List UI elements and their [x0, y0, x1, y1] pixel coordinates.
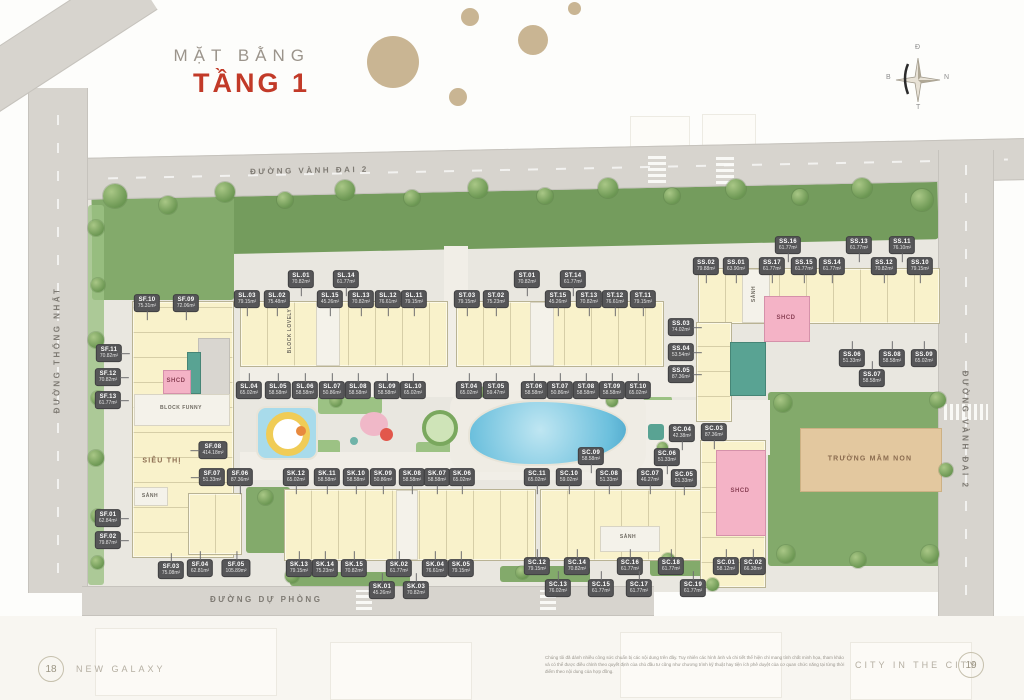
crosswalk [648, 155, 666, 183]
unit-chip-SC.07: SC.0746.27m² [637, 468, 663, 486]
unit-chip-SL.06: SL.0658.58m² [292, 381, 318, 399]
unit-chip-SL.14: SL.1461.77m² [333, 270, 359, 288]
unit-chip-SL.03: SL.0379.15m² [234, 290, 260, 308]
lobby-area [530, 302, 554, 366]
unit-chip-ST.02: ST.0275.23m² [483, 290, 509, 308]
unit-chip-ST.06: ST.0658.58m² [521, 381, 547, 399]
unit-chip-SS.16: SS.1661.77m² [775, 236, 801, 254]
unit-chip-SL.05: SL.0558.58m² [265, 381, 291, 399]
unit-chip-SF.13: SF.1361.77m² [95, 391, 121, 409]
amenity-pad [648, 424, 664, 440]
unit-chip-SS.10: SS.1079.15m² [907, 257, 933, 275]
unit-chip-ST.03: ST.0379.15m² [454, 290, 480, 308]
unit-chip-SF.09: SF.0972.06m² [173, 294, 199, 312]
unit-chip-SL.08: SL.0858.58m² [345, 381, 371, 399]
compass-west-label: T [916, 104, 920, 111]
shcd-label: SHCD [730, 488, 749, 494]
unit-chip-SL.15: SL.1545.26m² [317, 290, 343, 308]
unit-chip-SS.09: SS.0965.02m² [911, 349, 937, 367]
compass-south-label: B [886, 74, 891, 81]
unit-chip-SL.07: SL.0750.86m² [319, 381, 345, 399]
page-title-subtitle: MẶT BẰNG [150, 46, 310, 66]
tree-icon [930, 392, 946, 408]
decor-circle [367, 36, 419, 88]
road-label-right: ĐƯỜNG VÀNH ĐAI 2 [961, 371, 970, 490]
community-block [730, 342, 766, 396]
unit-chip-SK.04: SK.0476.61m² [422, 559, 448, 577]
tree-icon [215, 182, 235, 202]
unit-chip-ST.09: ST.0958.58m² [599, 381, 625, 399]
tree-icon [598, 178, 618, 198]
unit-chip-SC.18: SC.1861.77m² [658, 557, 684, 575]
site-plan-page: MẶT BẰNG TẦNG 1 Đ N T B [0, 0, 1024, 700]
unit-chip-SS.15: SS.1561.77m² [791, 257, 817, 275]
tree-icon [852, 178, 872, 198]
tree-icon [404, 190, 420, 206]
block-lovely-lobby [316, 302, 340, 366]
tree-icon [91, 278, 105, 292]
tree-icon [911, 189, 933, 211]
building-ss-wing [696, 322, 732, 422]
tree-icon [939, 463, 953, 477]
tree-icon [468, 178, 488, 198]
tree-icon [159, 196, 177, 214]
unit-chip-SL.12: SL.1276.61m² [375, 290, 401, 308]
unit-chip-SF.11: SF.1170.82m² [96, 344, 122, 362]
unit-chip-ST.05: ST.0559.47m² [483, 381, 509, 399]
unit-chip-SK.15: SK.1570.82m² [341, 559, 367, 577]
unit-chip-SC.11: SC.1165.02m² [524, 468, 550, 486]
tree-icon [88, 450, 104, 466]
lobby-label: SẢNH [620, 534, 636, 540]
play-item [380, 428, 393, 441]
tree-icon [664, 188, 680, 204]
shcd-label: SHCD [776, 315, 795, 321]
compass-rose: Đ N T B [886, 48, 950, 112]
compass-north-label: N [944, 74, 949, 81]
road-label-bottom: ĐƯỜNG DỰ PHÒNG [210, 595, 322, 604]
unit-chip-SF.10: SF.1075.31m² [134, 294, 160, 312]
tree-icon [103, 184, 127, 208]
unit-chip-SF.03: SF.0375.08m² [158, 561, 184, 579]
future-block [95, 628, 277, 696]
decor-circle [461, 8, 479, 26]
lawn-circle [422, 410, 458, 446]
tree-icon [537, 188, 553, 204]
unit-chip-ST.14: ST.1461.77m² [560, 270, 586, 288]
unit-chip-SK.03: SK.0370.82m² [403, 581, 429, 599]
unit-chip-SC.17: SC.1761.77m² [626, 579, 652, 597]
unit-chip-SS.07: SS.0758.58m² [859, 369, 885, 387]
unit-chip-SF.05: SF.05105.89m² [221, 559, 250, 577]
unit-chip-SC.04: SC.0442.38m² [669, 424, 695, 442]
tree-icon [277, 192, 293, 208]
lobby-area [396, 490, 418, 560]
unit-chip-SS.01: SS.0163.90m² [723, 257, 749, 275]
unit-chip-ST.01: ST.0170.82m² [514, 270, 540, 288]
unit-chip-SS.17: SS.1761.77m² [759, 257, 785, 275]
unit-chip-ST.10: ST.1065.02m² [625, 381, 651, 399]
unit-chip-SF.12: SF.1270.82m² [95, 368, 121, 386]
tree-icon [706, 578, 719, 591]
brand-left: NEW GALAXY [76, 664, 166, 674]
future-block [330, 642, 472, 700]
page-number-left: 18 [38, 656, 64, 682]
unit-chip-SC.15: SC.1561.77m² [588, 579, 614, 597]
tree-icon [91, 556, 104, 569]
unit-chip-SL.10: SL.1065.02m² [400, 381, 426, 399]
unit-chip-SK.09: SK.0950.86m² [370, 468, 396, 486]
shcd-label: SHCD [166, 378, 185, 384]
unit-chip-SS.04: SS.0453.54m² [668, 343, 694, 361]
road-label-left: ĐƯỜNG THỐNG NHẤT [53, 287, 62, 414]
unit-chip-ST.11: ST.1179.15m² [630, 290, 656, 308]
unit-chip-SS.12: SS.1270.82m² [871, 257, 897, 275]
unit-chip-SC.02: SC.0266.38m² [740, 557, 766, 575]
unit-chip-SF.07: SF.0751.33m² [199, 468, 225, 486]
unit-chip-ST.15: ST.1545.26m² [545, 290, 571, 308]
unit-chip-SC.13: SC.1376.02m² [545, 579, 571, 597]
unit-chip-SK.14: SK.1475.23m² [312, 559, 338, 577]
unit-chip-SC.05: SC.0551.33m² [671, 469, 697, 487]
lobby-label: SẢNH [751, 286, 757, 302]
block-name-funny: BLOCK FUNNY [160, 405, 202, 411]
compass-star-icon [886, 48, 950, 112]
building-block-lovely [240, 301, 448, 367]
unit-chip-SC.03: SC.0387.36m² [701, 423, 727, 441]
unit-chip-ST.08: ST.0858.58m² [573, 381, 599, 399]
unit-chip-SL.13: SL.1370.82m² [348, 290, 374, 308]
unit-chip-SF.01: SF.0162.84m² [95, 509, 121, 527]
unit-chip-ST.12: ST.1276.61m² [602, 290, 628, 308]
unit-chip-SC.12: SC.1279.15m² [524, 557, 550, 575]
unit-chip-SF.04: SF.0462.81m² [187, 559, 213, 577]
page-title-main: TẦNG 1 [150, 68, 310, 99]
unit-chip-SS.02: SS.0279.88m² [693, 257, 719, 275]
unit-chip-SS.11: SS.1176.10m² [889, 236, 915, 254]
unit-chip-SK.02: SK.0261.77m² [386, 559, 412, 577]
lobby-label: SẢNH [142, 493, 158, 499]
unit-chip-SK.11: SK.1158.58m² [314, 468, 340, 486]
tree-icon [921, 545, 939, 563]
tree-icon [792, 189, 808, 205]
decor-circle [568, 2, 581, 15]
unit-chip-SK.08: SK.0858.58m² [399, 468, 425, 486]
unit-chip-SC.19: SC.1961.77m² [680, 579, 706, 597]
unit-chip-SF.08: SF.08414.18m² [198, 441, 227, 459]
tree-icon [850, 552, 866, 568]
play-item [296, 426, 306, 436]
decor-circle [449, 88, 467, 106]
unit-chip-ST.07: ST.0750.86m² [547, 381, 573, 399]
unit-chip-SF.02: SF.0279.87m² [95, 531, 121, 549]
unit-chip-SL.04: SL.0465.02m² [236, 381, 262, 399]
future-block [702, 114, 756, 148]
kindergarten-label: TRƯỜNG MẦM NON [828, 456, 913, 463]
compass-east-label: Đ [915, 44, 920, 51]
unit-chip-ST.04: ST.0465.02m² [456, 381, 482, 399]
supermarket-label: SIÊU THỊ [142, 458, 181, 465]
unit-chip-SK.12: SK.1265.02m² [283, 468, 309, 486]
road-centerline [108, 158, 1008, 179]
unit-chip-SS.06: SS.0651.33m² [839, 349, 865, 367]
unit-chip-SC.10: SC.1059.02m² [556, 468, 582, 486]
unit-chip-SL.09: SL.0958.58m² [374, 381, 400, 399]
service-core [198, 338, 230, 398]
building-block-trendy [456, 301, 664, 367]
page-number-right: 19 [958, 652, 984, 678]
tree-icon [258, 490, 273, 505]
disclaimer-text: Chúng tôi đã dành nhiều công sức chuẩn b… [545, 655, 845, 675]
unit-chip-SC.14: SC.1470.82m² [564, 557, 590, 575]
building-block-sunny [698, 268, 940, 324]
unit-chip-SL.02: SL.0275.48m² [264, 290, 290, 308]
unit-chip-SL.11: SL.1179.15m² [401, 290, 427, 308]
unit-chip-SC.09: SC.0958.58m² [578, 447, 604, 465]
unit-chip-SK.13: SK.1379.15m² [286, 559, 312, 577]
tree-icon [777, 545, 795, 563]
unit-chip-SC.01: SC.0158.12m² [713, 557, 739, 575]
unit-chip-SS.13: SS.1361.77m² [846, 236, 872, 254]
unit-chip-SC.06: SC.0651.33m² [654, 448, 680, 466]
future-block [850, 642, 972, 700]
unit-chip-SK.06: SK.0665.02m² [449, 468, 475, 486]
decor-circle [518, 25, 548, 55]
tree-icon [774, 394, 792, 412]
future-block [630, 116, 690, 148]
page-title: MẶT BẰNG TẦNG 1 [150, 46, 310, 99]
unit-chip-SK.07: SK.0758.58m² [424, 468, 450, 486]
unit-chip-SF.06: SF.0687.36m² [227, 468, 253, 486]
unit-chip-SL.01: SL.0170.82m² [288, 270, 314, 288]
unit-chip-ST.13: ST.1370.82m² [576, 290, 602, 308]
unit-chip-SK.10: SK.1058.58m² [343, 468, 369, 486]
unit-chip-SS.03: SS.0374.02m² [668, 318, 694, 336]
block-name-lovely: BLOCK LOVELY [287, 309, 293, 354]
unit-chip-SS.14: SS.1461.77m² [819, 257, 845, 275]
unit-chip-SS.08: SS.0858.58m² [879, 349, 905, 367]
building-sf-04-05 [188, 493, 242, 555]
tree-icon [335, 180, 355, 200]
play-item [350, 437, 358, 445]
tree-icon [88, 220, 104, 236]
unit-chip-SS.05: SS.0587.36m² [668, 365, 694, 383]
tree-icon [726, 179, 746, 199]
unit-chip-SC.08: SC.0851.33m² [596, 468, 622, 486]
unit-chip-SK.05: SK.0579.15m² [448, 559, 474, 577]
unit-chip-SK.01: SK.0145.26m² [369, 581, 395, 599]
